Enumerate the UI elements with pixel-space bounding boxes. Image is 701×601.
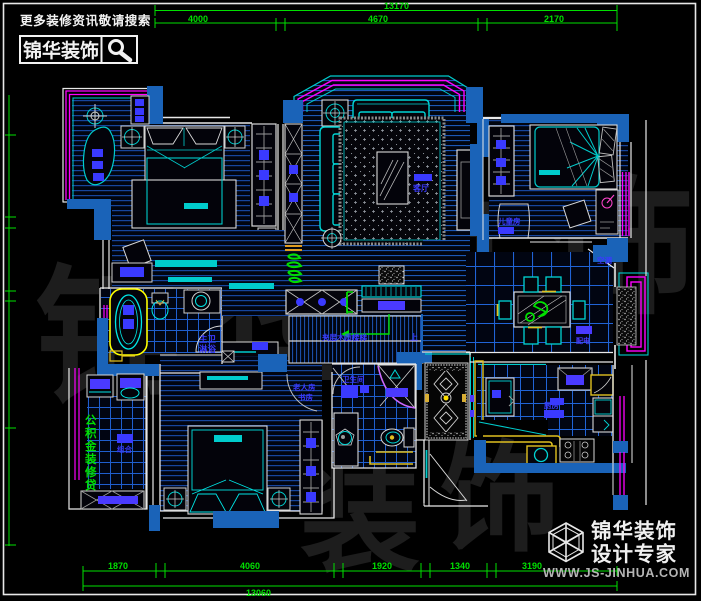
svg-text:1340: 1340 bbox=[450, 561, 470, 571]
svg-text:1920: 1920 bbox=[372, 561, 392, 571]
svg-text:公: 公 bbox=[85, 414, 97, 427]
svg-text:金: 金 bbox=[84, 439, 97, 453]
svg-text:装: 装 bbox=[84, 452, 97, 466]
svg-text:2170: 2170 bbox=[544, 14, 564, 24]
svg-text:4000: 4000 bbox=[188, 14, 208, 24]
svg-text:锦华装饰: 锦华装饰 bbox=[23, 39, 99, 62]
svg-text:1870: 1870 bbox=[108, 561, 128, 571]
svg-text:锦华装饰: 锦华装饰 bbox=[591, 519, 677, 543]
svg-text:13060: 13060 bbox=[246, 588, 271, 598]
svg-text:组合: 组合 bbox=[117, 444, 132, 454]
svg-text:WWW.JS-JINHUA.COM: WWW.JS-JINHUA.COM bbox=[543, 566, 690, 580]
svg-text:4060: 4060 bbox=[240, 561, 260, 571]
svg-text:夹层木质楼梯: 夹层木质楼梯 bbox=[322, 332, 367, 342]
svg-text:主卫: 主卫 bbox=[199, 334, 217, 344]
svg-text:配电: 配电 bbox=[576, 336, 590, 345]
svg-text:上: 上 bbox=[410, 332, 418, 342]
svg-text:客厅: 客厅 bbox=[412, 183, 429, 193]
svg-text:淋浴: 淋浴 bbox=[199, 344, 217, 354]
svg-text:积: 积 bbox=[85, 426, 97, 440]
svg-text:老人房: 老人房 bbox=[292, 382, 316, 392]
svg-text:书房: 书房 bbox=[298, 392, 313, 402]
svg-text:设计专家: 设计专家 bbox=[591, 542, 677, 566]
svg-text:4670: 4670 bbox=[368, 14, 388, 24]
svg-text:卫生间: 卫生间 bbox=[342, 374, 365, 384]
svg-text:空调: 空调 bbox=[597, 255, 612, 265]
svg-text:修: 修 bbox=[84, 465, 97, 479]
svg-text:更多装修资讯敬请搜索: 更多装修资讯敬请搜索 bbox=[20, 13, 151, 28]
svg-text:3190: 3190 bbox=[522, 561, 542, 571]
svg-text:13170: 13170 bbox=[384, 1, 409, 11]
svg-text:贷: 贷 bbox=[85, 478, 97, 492]
svg-text:儿童房: 儿童房 bbox=[497, 216, 521, 226]
